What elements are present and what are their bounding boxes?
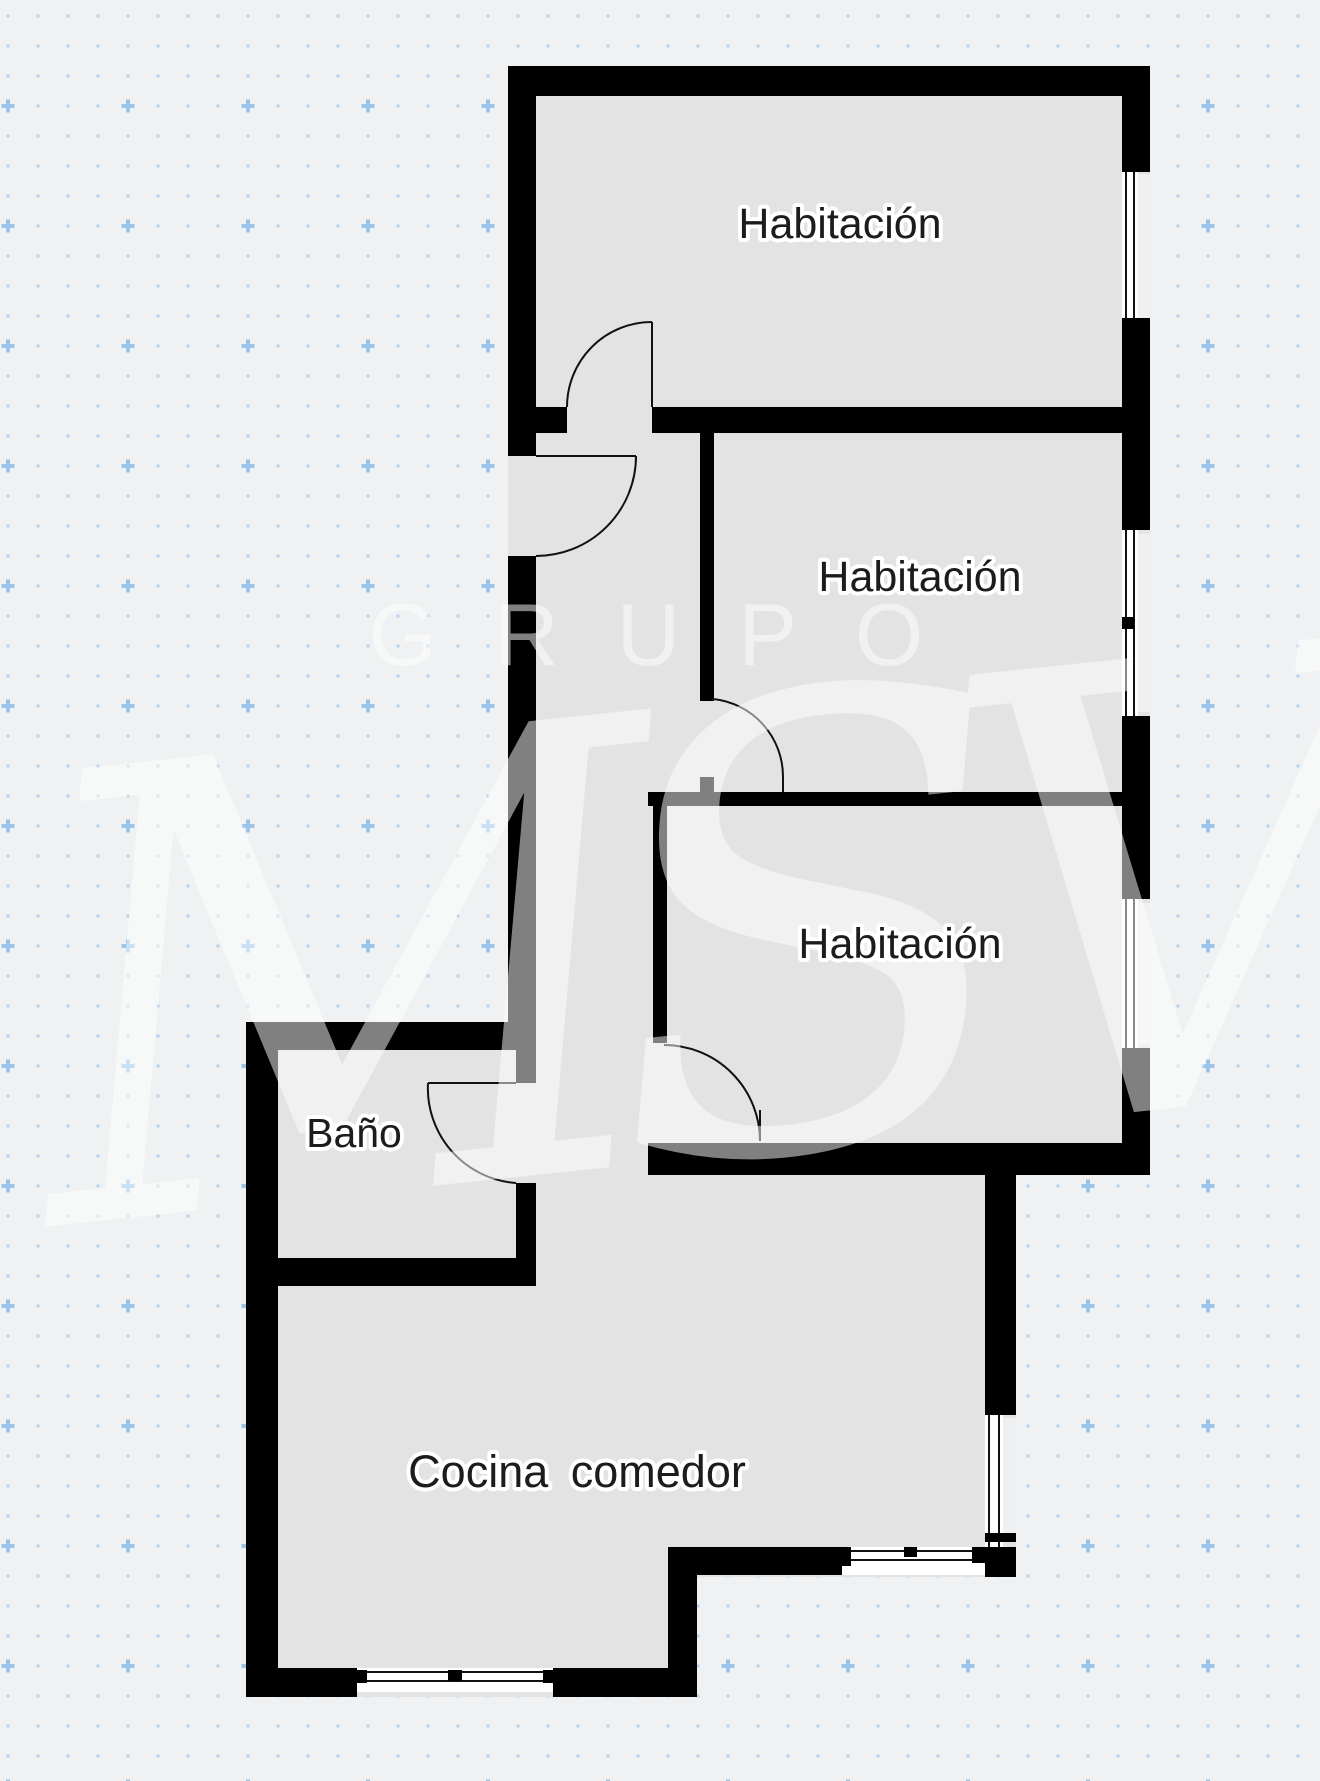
window-cocina-right	[985, 1406, 1016, 1547]
window-mullion	[904, 1547, 917, 1557]
window-cap	[842, 1547, 851, 1566]
window-cap	[543, 1670, 553, 1683]
watermark: GRUPO MSV	[0, 505, 1320, 1373]
wall-segment	[668, 1547, 697, 1697]
room-label-habitacion-2: Habitación	[818, 553, 1021, 601]
window-cap	[357, 1670, 367, 1683]
wall-segment	[652, 407, 1150, 433]
window-cap	[1122, 521, 1150, 530]
wall-segment	[985, 1547, 1016, 1577]
window-cap	[972, 1547, 985, 1563]
window-outer-gap	[1138, 174, 1150, 318]
room-label-cocina-comedor: Cocina comedor	[408, 1446, 746, 1497]
window-glass	[985, 1410, 1003, 1547]
window-cap	[985, 1406, 1016, 1415]
window-cap	[985, 1533, 1016, 1542]
floor-plan-page: GRUPO MSV Habitación Habitación Habitaci…	[0, 0, 1320, 1781]
watermark-monogram-text: MSV	[0, 505, 1320, 1373]
window-cocina-bottom-left	[357, 1668, 553, 1692]
room-label-habitacion-3: Habitación	[798, 920, 1001, 968]
wall-segment	[508, 66, 1150, 96]
window-cap	[1122, 163, 1150, 172]
room-label-habitacion-1: Habitación	[738, 200, 941, 248]
floor-plan-svg: GRUPO MSV Habitación Habitación Habitaci…	[0, 0, 1320, 1781]
window-cocina-bottom-right	[842, 1547, 985, 1575]
window-mullion	[448, 1670, 462, 1681]
room-label-bano: Baño	[306, 1110, 402, 1156]
window-cap	[1122, 318, 1150, 327]
window-habitacion-1	[1122, 163, 1150, 327]
wall-segment	[508, 66, 536, 456]
window-glass	[1122, 168, 1138, 322]
window-outer-gap	[1003, 1418, 1016, 1539]
wall-segment	[1122, 320, 1150, 528]
wall-segment	[1122, 66, 1150, 170]
